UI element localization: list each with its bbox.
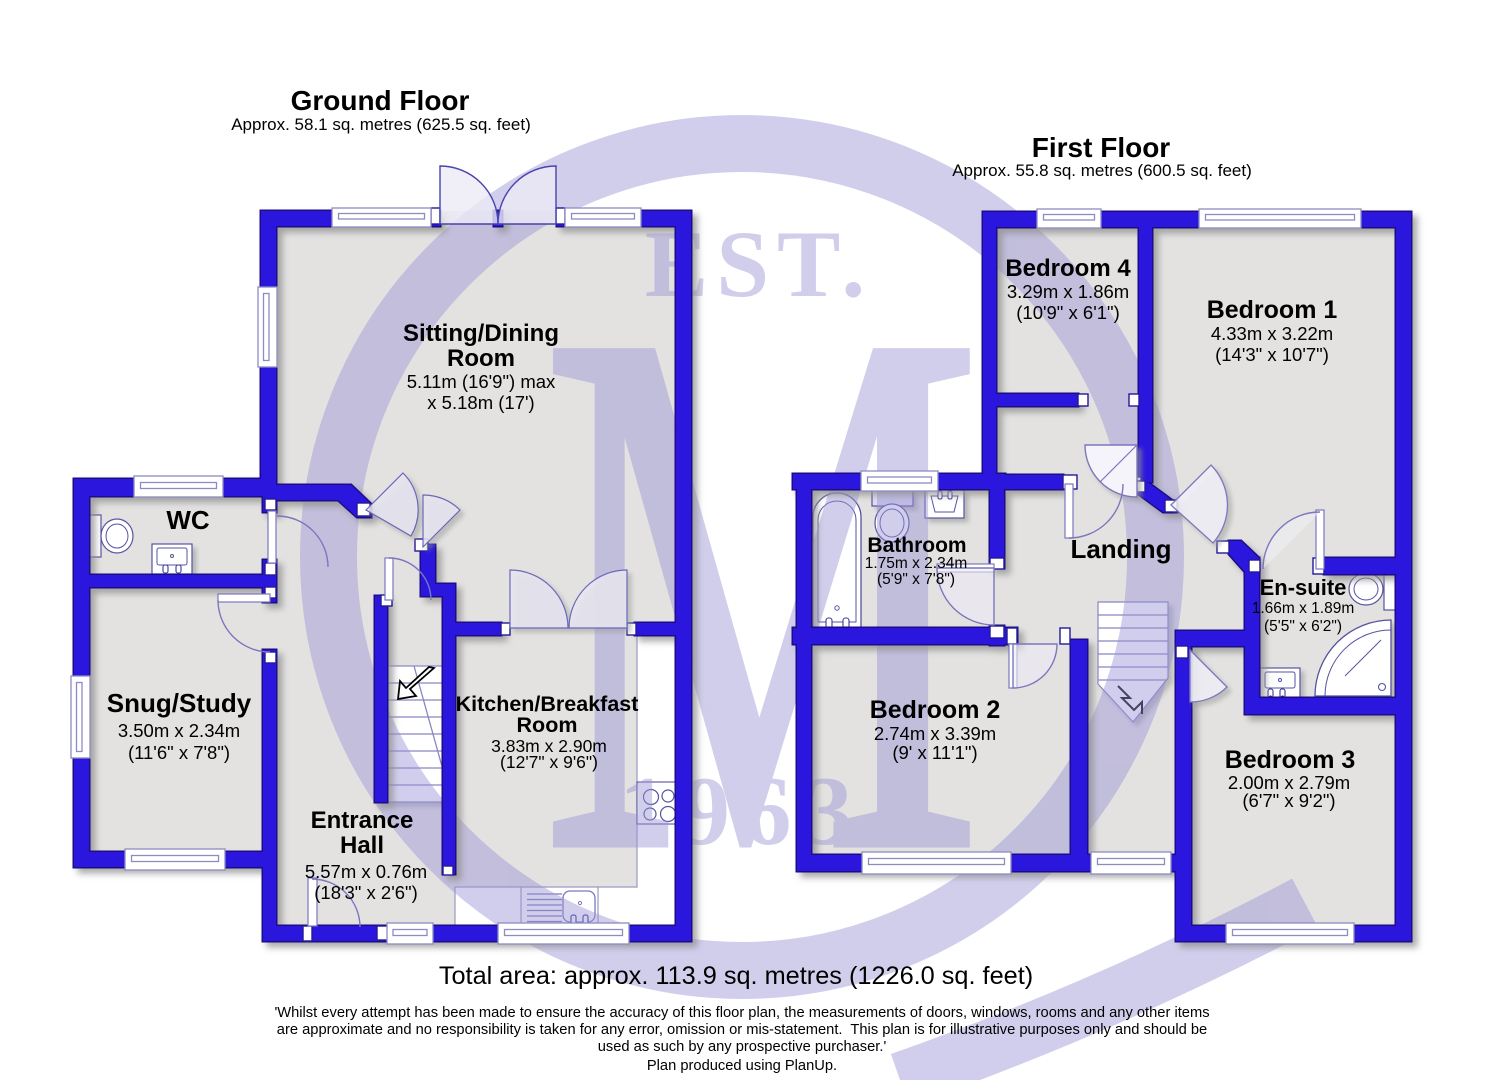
svg-text:Entrance: Entrance	[311, 807, 414, 834]
svg-text:3.29m x 1.86m: 3.29m x 1.86m	[1007, 281, 1129, 302]
svg-text:(5'5" x 6'2"): (5'5" x 6'2")	[1264, 618, 1342, 635]
svg-text:x 5.18m (17'): x 5.18m (17')	[427, 392, 534, 413]
svg-text:Plan produced using PlanUp.: Plan produced using PlanUp.	[647, 1058, 837, 1074]
svg-text:Room: Room	[517, 713, 578, 737]
svg-text:Sitting/Dining: Sitting/Dining	[403, 320, 559, 347]
svg-text:(10'9" x 6'1"): (10'9" x 6'1")	[1016, 302, 1120, 323]
svg-text:(18'3" x 2'6"): (18'3" x 2'6")	[314, 882, 418, 903]
svg-text:5.11m (16'9") max: 5.11m (16'9") max	[407, 371, 556, 392]
svg-text:(12'7" x 9'6"): (12'7" x 9'6")	[500, 752, 598, 772]
svg-text:Bathroom: Bathroom	[867, 534, 966, 557]
svg-text:Approx. 58.1 sq. metres (625.5: Approx. 58.1 sq. metres (625.5 sq. feet)	[231, 115, 531, 134]
svg-text:used as such by any prospectiv: used as such by any prospective purchase…	[598, 1039, 887, 1055]
svg-text:(5'9" x 7'8"): (5'9" x 7'8")	[877, 571, 955, 588]
svg-text:Hall: Hall	[340, 832, 384, 859]
svg-text:are approximate and no respons: are approximate and no responsibility is…	[277, 1022, 1207, 1038]
svg-text:1.66m x 1.89m: 1.66m x 1.89m	[1252, 600, 1355, 617]
svg-text:Room: Room	[447, 345, 515, 372]
svg-text:WC: WC	[166, 505, 210, 535]
svg-text:Bedroom 3: Bedroom 3	[1225, 746, 1356, 774]
svg-text:Total area: approx. 113.9 sq.: Total area: approx. 113.9 sq. metres (12…	[439, 962, 1033, 990]
svg-text:2.74m x 3.39m: 2.74m x 3.39m	[874, 723, 996, 744]
svg-text:3.50m x 2.34m: 3.50m x 2.34m	[118, 720, 240, 741]
svg-text:Bedroom 1: Bedroom 1	[1207, 296, 1338, 324]
svg-text:Bedroom 2: Bedroom 2	[870, 696, 1001, 724]
svg-text:1.75m x 2.34m: 1.75m x 2.34m	[865, 555, 968, 572]
svg-text:Snug/Study: Snug/Study	[107, 688, 252, 718]
svg-text:1963: 1963	[619, 757, 865, 866]
svg-text:First Floor: First Floor	[1032, 132, 1171, 163]
svg-text:'Whilst every attempt has been: 'Whilst every attempt has been made to e…	[274, 1005, 1209, 1021]
svg-text:(14'3" x 10'7"): (14'3" x 10'7")	[1215, 344, 1329, 365]
svg-text:4.33m x 3.22m: 4.33m x 3.22m	[1211, 323, 1333, 344]
svg-text:Approx. 55.8 sq. metres (600.5: Approx. 55.8 sq. metres (600.5 sq. feet)	[952, 161, 1252, 180]
svg-text:5.57m x 0.76m: 5.57m x 0.76m	[305, 861, 427, 882]
svg-text:(6'7" x 9'2"): (6'7" x 9'2")	[1242, 790, 1335, 811]
svg-text:Landing: Landing	[1070, 534, 1171, 564]
svg-text:(9' x 11'1"): (9' x 11'1")	[892, 742, 977, 763]
svg-text:Ground Floor: Ground Floor	[291, 85, 470, 116]
svg-text:Bedroom 4: Bedroom 4	[1005, 255, 1131, 282]
svg-text:(11'6" x 7'8"): (11'6" x 7'8")	[128, 742, 230, 763]
svg-text:En-suite: En-suite	[1260, 575, 1347, 600]
